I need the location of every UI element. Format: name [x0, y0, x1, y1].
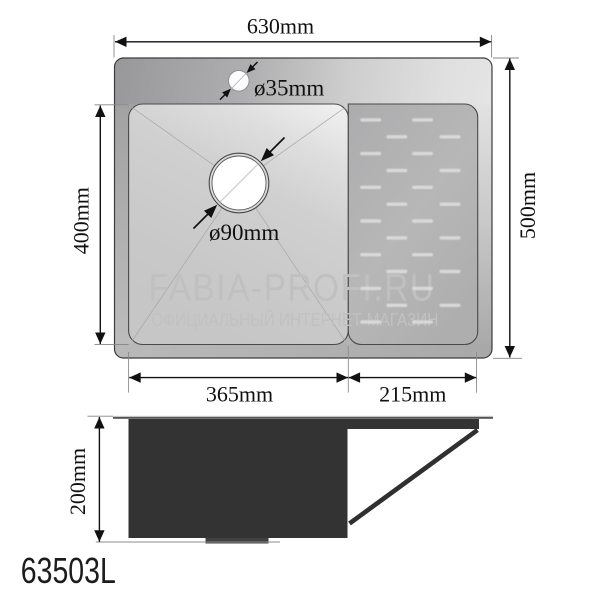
svg-text:ø90mm: ø90mm [209, 220, 279, 245]
svg-text:400mm: 400mm [68, 187, 93, 254]
svg-text:630mm: 630mm [247, 14, 314, 39]
svg-text:200mm: 200mm [65, 448, 90, 515]
svg-text:63503L: 63503L [21, 550, 116, 591]
svg-text:500mm: 500mm [515, 172, 540, 239]
svg-text:ø35mm: ø35mm [254, 76, 324, 101]
svg-text:ОФИЦИАЛЬНЫЙ ИНТЕРНЕТ-МАГАЗИН: ОФИЦИАЛЬНЫЙ ИНТЕРНЕТ-МАГАЗИН [151, 309, 438, 330]
svg-text:215mm: 215mm [379, 382, 446, 407]
svg-text:365mm: 365mm [206, 382, 273, 407]
svg-text:FABIA-PROFI.RU: FABIA-PROFI.RU [149, 268, 436, 310]
